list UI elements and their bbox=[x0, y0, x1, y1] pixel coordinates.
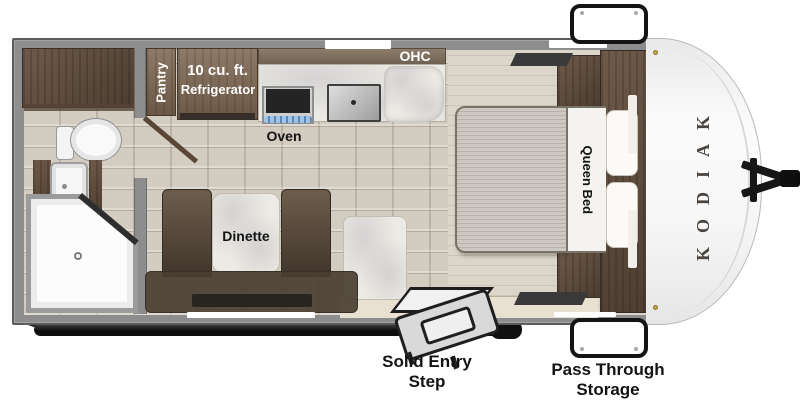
storage-screw bbox=[580, 347, 584, 351]
storage-door-top bbox=[570, 4, 648, 44]
dinette-bench-right bbox=[281, 189, 331, 277]
queen-bed-label: Queen Bed bbox=[579, 145, 595, 214]
storage-screw bbox=[634, 11, 638, 15]
brand-mark-wrap: KODIAK bbox=[648, 60, 758, 303]
dinette-bench-left bbox=[162, 189, 212, 277]
pantry-label: Pantry bbox=[154, 62, 169, 102]
pantry-cabinet: Pantry bbox=[146, 48, 176, 116]
rear-overhead-cabinet bbox=[22, 48, 138, 108]
queen-mattress bbox=[455, 106, 568, 253]
sink-faucet bbox=[62, 184, 67, 189]
oven-top bbox=[266, 89, 310, 113]
kitchen-counter-end bbox=[384, 66, 444, 122]
window-dinette bbox=[187, 312, 315, 318]
cap-screw-top bbox=[653, 50, 658, 55]
bedroom-shelf-top bbox=[510, 53, 573, 66]
oven-label: Oven bbox=[258, 128, 310, 145]
refrigerator-vent bbox=[180, 113, 255, 120]
rv-floorplan: Pantry 10 cu. ft. Refrigerator OHC Oven … bbox=[0, 0, 800, 400]
bedroom-floor-mat bbox=[514, 292, 588, 305]
shower-drain bbox=[74, 252, 82, 260]
brand-mark: KODIAK bbox=[693, 102, 714, 261]
storage-screw bbox=[634, 347, 638, 351]
oven-knobs bbox=[264, 116, 312, 123]
queen-bed-sheet: Queen Bed bbox=[568, 106, 606, 253]
hitch-coupler-tip bbox=[795, 173, 800, 184]
nightstand-bottom bbox=[557, 248, 603, 298]
toilet-bowl bbox=[70, 118, 122, 162]
window-kitchen bbox=[325, 40, 391, 49]
sink-drain bbox=[351, 100, 356, 105]
dinette-label: Dinette bbox=[212, 228, 280, 245]
wardrobe-mirror-top bbox=[628, 95, 637, 153]
wardrobe-mirror-bottom bbox=[628, 210, 637, 268]
window-bedroom-bottom bbox=[554, 312, 616, 317]
rear-cabinet-shelf-lip bbox=[24, 104, 136, 111]
pass-through-storage-label: Pass Through Storage bbox=[537, 360, 679, 400]
bathroom-wall-upper bbox=[134, 48, 146, 118]
refrigerator-label: Refrigerator bbox=[173, 82, 263, 97]
refrigerator-size-label: 10 cu. ft. bbox=[177, 62, 258, 79]
cap-screw-bottom bbox=[653, 305, 658, 310]
dinette-floor-mat bbox=[192, 294, 312, 307]
solid-entry-step-label: Solid Entry Step bbox=[356, 352, 498, 393]
storage-door-bottom bbox=[570, 318, 648, 358]
storage-screw bbox=[580, 11, 584, 15]
ohc-label: OHC bbox=[392, 48, 438, 64]
